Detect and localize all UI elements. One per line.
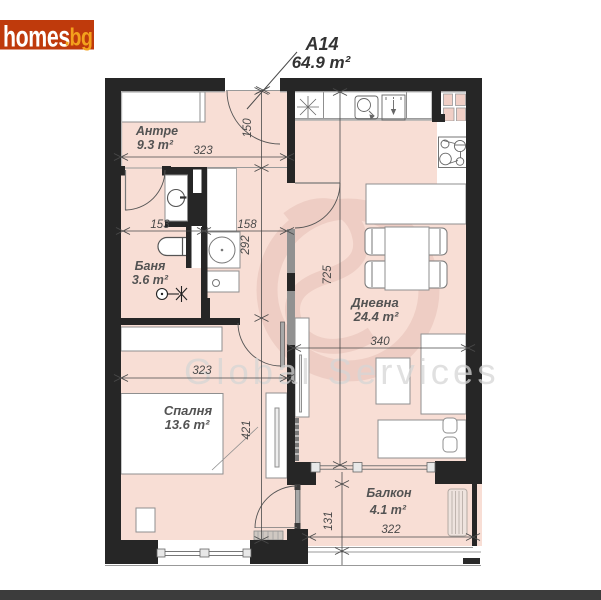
svg-text:323: 323 [192, 365, 212, 377]
svg-text:Антре: Антре [135, 124, 178, 138]
svg-text:323: 323 [193, 145, 213, 157]
svg-text:13.6 m²: 13.6 m² [165, 417, 210, 432]
svg-text:131: 131 [323, 511, 335, 530]
svg-text:Балкон: Балкон [366, 486, 412, 500]
svg-text:Global Services: Global Services [184, 351, 500, 392]
svg-text:150: 150 [242, 118, 254, 138]
svg-text:158: 158 [237, 219, 257, 231]
svg-text:Дневна: Дневна [350, 295, 398, 310]
svg-text:64.9 m²: 64.9 m² [292, 53, 352, 72]
svg-text:.bg: .bg [65, 23, 93, 51]
svg-text:725: 725 [322, 265, 334, 285]
svg-text:3.6 m²: 3.6 m² [132, 273, 169, 287]
svg-text:9.3 m²: 9.3 m² [137, 138, 174, 152]
svg-text:292: 292 [240, 235, 252, 256]
svg-text:Баня: Баня [135, 259, 166, 273]
svg-text:A14: A14 [304, 34, 338, 54]
svg-text:421: 421 [241, 420, 253, 439]
svg-text:24.4 m²: 24.4 m² [353, 309, 399, 324]
svg-text:153: 153 [150, 219, 170, 231]
svg-text:4.1 m²: 4.1 m² [369, 503, 407, 517]
svg-text:Спалня: Спалня [164, 403, 213, 418]
svg-text:homes: homes [3, 19, 70, 54]
svg-text:340: 340 [370, 336, 390, 348]
svg-text:322: 322 [381, 524, 401, 536]
